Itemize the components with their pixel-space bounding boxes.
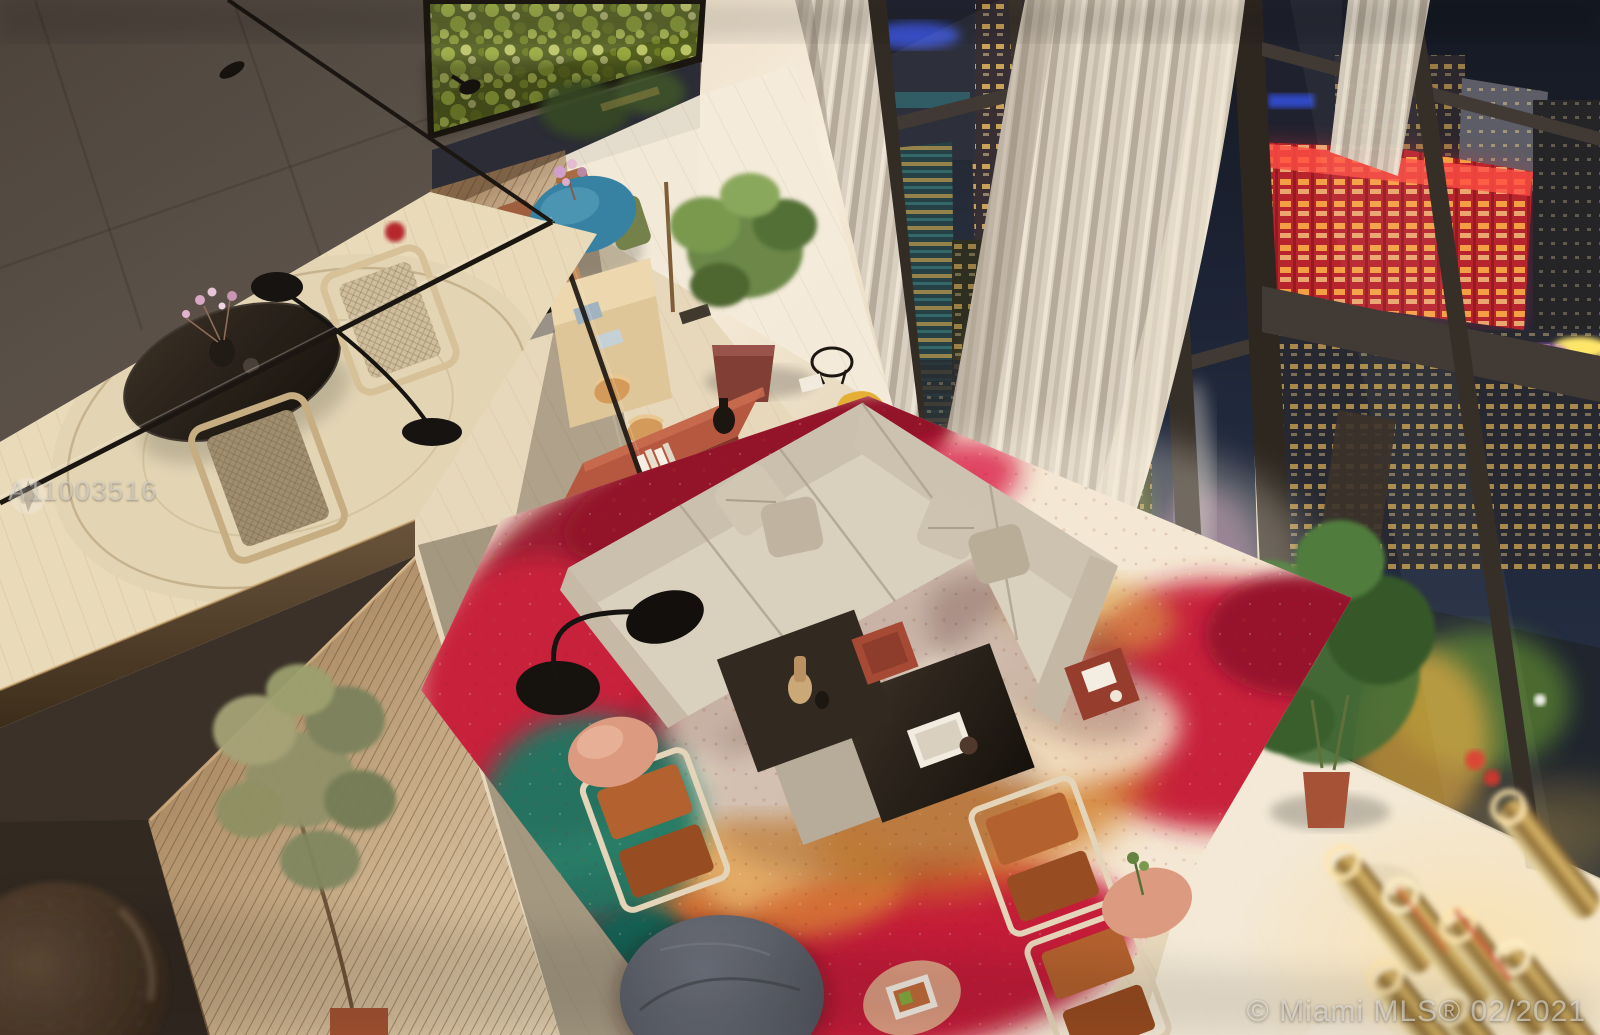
color-grade bbox=[0, 0, 1600, 1035]
interior-scene bbox=[0, 0, 1600, 1035]
penthouse-listing-photo: A11003516 © Miami MLS® 02/2021 bbox=[0, 0, 1600, 1035]
